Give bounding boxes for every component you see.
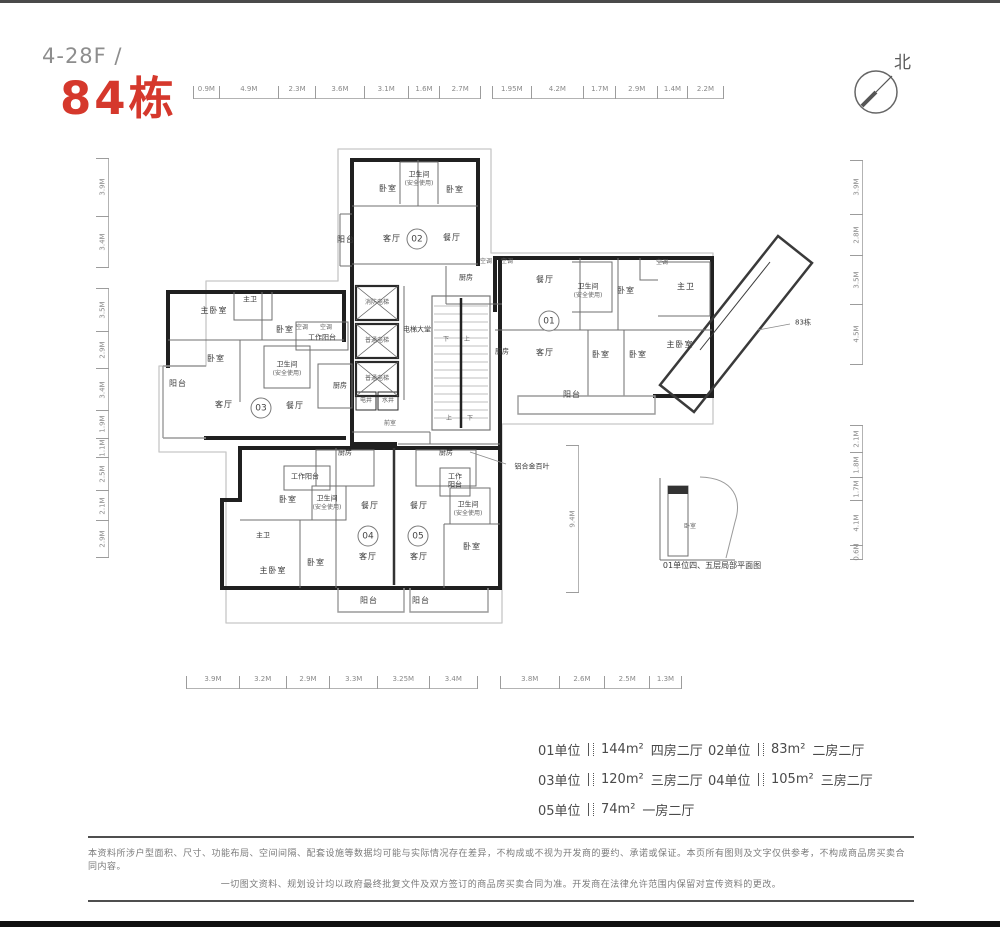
unit-03-number: 03	[251, 398, 272, 419]
label-master-bath-03: 主卫	[243, 297, 257, 304]
structural-walls	[168, 160, 712, 588]
label-bedroom-01a: 卧室	[617, 287, 635, 295]
label-bathroom-01-note: (安全使用)	[574, 293, 603, 299]
label-fire-elevator: 消防电梯	[365, 300, 389, 306]
label-balcony-02: 阳台	[337, 236, 355, 244]
label-master-bedroom-01: 主卧室	[667, 341, 694, 349]
inset-caption: 01单位四、五层局部平面图	[663, 562, 761, 570]
legend-area-03: 120m²	[601, 772, 644, 787]
dim-bottom-right: 3.8M2.6M2.5M1.3M	[500, 676, 682, 689]
stairs	[432, 296, 490, 430]
disclaimer-line-1: 本资料所涉户型面积、尺寸、功能布局、空间间隔、配套设施等数据均可能与实际情况存在…	[88, 846, 914, 872]
label-bedroom-04a: 卧室	[279, 496, 297, 504]
legend-unit-03: 03单位	[538, 770, 584, 789]
label-adjacent-building: 83栋	[795, 320, 811, 327]
legend-divider-icon	[588, 803, 594, 816]
label-balcony-05: 阳台	[412, 597, 430, 605]
label-kitchen-03: 厨房	[333, 383, 347, 390]
legend-unit-04: 04单位	[708, 770, 754, 789]
legend-item-01: 01单位 144m² 四房二厅	[538, 740, 708, 759]
interior-walls	[168, 160, 737, 588]
label-bedroom-04b: 卧室	[307, 559, 325, 567]
label-balcony-03: 阳台	[169, 380, 187, 388]
label-bedroom-01b: 卧室	[592, 351, 610, 359]
label-bedroom-03a: 卧室	[276, 326, 294, 334]
dim-middle-vertical: 9.4M	[566, 445, 579, 593]
dim-bottom-left: 3.9M3.2M2.9M3.3M3.25M3.4M	[186, 676, 478, 689]
label-master-bedroom-04: 主卧室	[260, 567, 287, 575]
label-bathroom-05: 卫生间	[458, 502, 479, 509]
label-kitchen-04: 厨房	[338, 450, 352, 457]
label-balcony-04: 阳台	[360, 597, 378, 605]
dim-left-lower: 3.5M2.9M3.4M1.9M1.1M2.5M2.1M2.9M	[96, 288, 109, 558]
label-kitchen-05: 厨房	[439, 450, 453, 457]
label-stairs-down-1: 下	[443, 337, 449, 343]
dim-right-upper: 3.9M2.8M3.5M4.5M	[850, 160, 863, 365]
label-dining-02: 餐厅	[443, 234, 461, 242]
label-work-balcony-05: 工作阳台	[445, 473, 465, 490]
unit-legend: 01单位 144m² 四房二厅 02单位 83m² 二房二厅 03单位 120m…	[538, 740, 888, 819]
unit-01-number: 01	[539, 311, 560, 332]
legend-divider-icon	[588, 773, 594, 786]
label-passenger-elevator-1: 普通电梯	[365, 338, 389, 344]
label-elevator-lobby: 电梯大堂	[403, 327, 431, 334]
legend-divider-icon	[758, 743, 764, 756]
label-work-balcony-04: 工作阳台	[291, 474, 319, 481]
label-bedroom-02a: 卧室	[379, 185, 397, 193]
label-living-01: 客厅	[536, 349, 554, 357]
label-kitchen-01: 厨房	[495, 349, 509, 356]
label-bathroom-02: 卫生间	[409, 172, 430, 179]
label-ac-1: 空调	[480, 259, 492, 265]
label-bedroom-03b: 卧室	[207, 355, 225, 363]
label-dining-01: 餐厅	[536, 276, 554, 284]
label-balcony-01: 阳台	[563, 391, 581, 399]
label-bathroom-02-note: (安全使用)	[405, 181, 434, 187]
dim-right-lower: 2.1M1.8M1.7M4.1M0.6M	[850, 425, 863, 560]
legend-area-01: 144m²	[601, 742, 644, 757]
label-passenger-elevator-2: 普通电梯	[365, 376, 389, 382]
legend-area-04: 105m²	[771, 772, 814, 787]
unit-04-number: 04	[358, 526, 379, 547]
unit-05-number: 05	[408, 526, 429, 547]
legend-unit-05: 05单位	[538, 800, 584, 819]
dim-top-right: 1.95M4.2M1.7M2.9M1.4M2.2M	[492, 86, 724, 99]
label-inset-bedroom: 卧室	[684, 524, 696, 530]
label-dining-04: 餐厅	[361, 502, 379, 510]
label-bedroom-01c: 卧室	[629, 351, 647, 359]
label-bathroom-03-note: (安全使用)	[273, 371, 302, 377]
label-ac-03b: 空调	[320, 325, 332, 331]
legend-unit-02: 02单位	[708, 740, 754, 759]
disclaimer: 本资料所涉户型面积、尺寸、功能布局、空间间隔、配套设施等数据均可能与实际情况存在…	[88, 836, 914, 902]
legend-type-01: 四房二厅	[651, 740, 703, 759]
legend-type-03: 三房二厅	[651, 770, 703, 789]
label-living-05: 客厅	[410, 553, 428, 561]
label-stairs-up-1: 上	[464, 337, 470, 343]
disclaimer-line-2: 一切图文资料、规划设计均以政府最终批复文件及双方签订的商品房买卖合同为准。开发商…	[221, 877, 782, 890]
label-bathroom-04-note: (安全使用)	[313, 505, 342, 511]
label-bathroom-04: 卫生间	[317, 496, 338, 503]
label-bathroom-01: 卫生间	[578, 284, 599, 291]
label-elec-shaft: 电井	[360, 398, 372, 404]
label-master-bath-01: 主卫	[677, 283, 695, 291]
legend-item-02: 02单位 83m² 二房二厅	[708, 740, 888, 759]
label-living-04: 客厅	[359, 553, 377, 561]
legend-area-05: 74m²	[601, 802, 635, 817]
label-bedroom-05: 卧室	[463, 543, 481, 551]
legend-unit-01: 01单位	[538, 740, 584, 759]
legend-area-02: 83m²	[771, 742, 805, 757]
label-bedroom-02b: 卧室	[446, 186, 464, 194]
label-living-03: 客厅	[215, 401, 233, 409]
label-living-02: 客厅	[383, 235, 401, 243]
label-bathroom-05-note: (安全使用)	[454, 511, 483, 517]
label-front-room: 前室	[384, 421, 396, 427]
legend-item-03: 03单位 120m² 三房二厅	[538, 770, 708, 789]
legend-divider-icon	[588, 743, 594, 756]
label-stairs-down-2: 下	[467, 416, 473, 422]
label-ac-01: 空调	[656, 260, 668, 266]
legend-item-04: 04单位 105m² 三房二厅	[708, 770, 888, 789]
dim-middle-vertical-label: 9.4M	[569, 510, 577, 527]
balcony-rails	[163, 366, 655, 612]
label-dining-03: 餐厅	[286, 402, 304, 410]
label-work-balcony-03: 工作阳台	[308, 335, 336, 342]
label-ac-2: 空调	[501, 259, 513, 265]
unit-02-number: 02	[407, 229, 428, 250]
label-stairs-up-2: 上	[446, 416, 452, 422]
label-water-shaft: 水井	[382, 398, 394, 404]
label-bathroom-03: 卫生间	[277, 362, 298, 369]
dim-left-upper: 3.9M3.4M	[96, 158, 109, 268]
legend-item-05: 05单位 74m² 一房二厅	[538, 800, 708, 819]
label-ac-03a: 空调	[296, 325, 308, 331]
dim-top-left: 0.9M4.9M2.3M3.6M3.1M1.6M2.7M	[193, 86, 481, 99]
label-dining-05: 餐厅	[410, 502, 428, 510]
label-louver-note: 铝合金百叶	[515, 464, 550, 471]
legend-divider-icon	[758, 773, 764, 786]
floorplan-page: 4-28F / 84栋 北	[0, 0, 1000, 927]
label-master-bedroom-03: 主卧室	[201, 307, 228, 315]
legend-type-04: 三房二厅	[821, 770, 873, 789]
legend-type-02: 二房二厅	[812, 740, 864, 759]
label-master-bath-04: 主卫	[256, 533, 270, 540]
legend-type-05: 一房二厅	[642, 800, 694, 819]
label-kitchen-core: 厨房	[459, 275, 473, 282]
